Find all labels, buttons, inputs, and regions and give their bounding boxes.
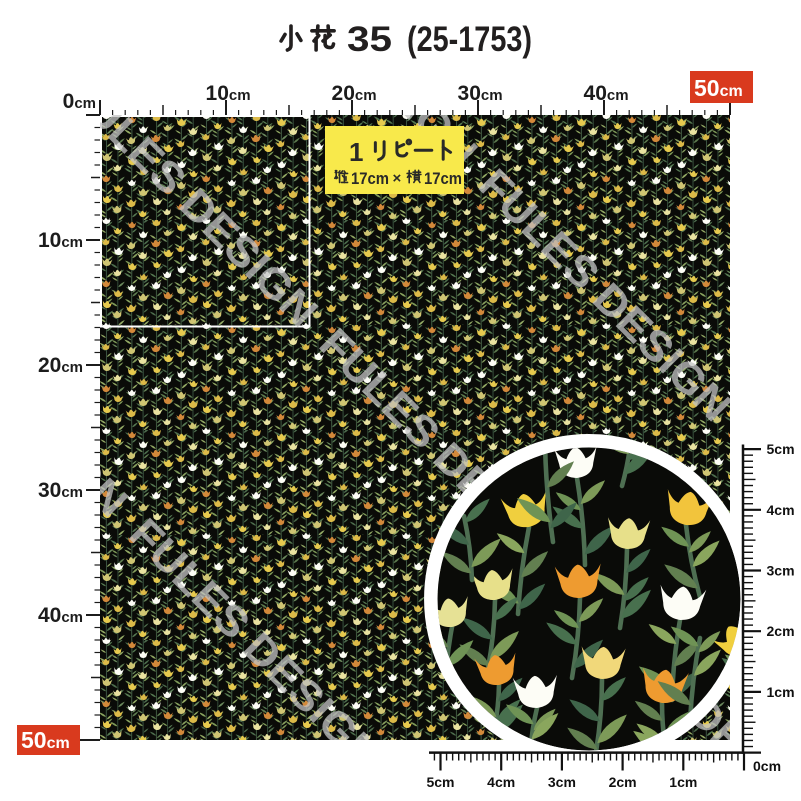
svg-text:1cm: 1cm <box>767 684 795 700</box>
svg-text:4cm: 4cm <box>487 774 515 790</box>
svg-text:2cm: 2cm <box>609 774 637 790</box>
svg-text:3cm: 3cm <box>767 563 795 579</box>
svg-text:35: 35 <box>347 20 392 59</box>
svg-text:4cm: 4cm <box>767 502 795 518</box>
svg-text:5cm: 5cm <box>426 774 454 790</box>
svg-text:3cm: 3cm <box>548 774 576 790</box>
svg-text:17cm: 17cm <box>351 169 389 188</box>
svg-text:17cm: 17cm <box>424 169 462 188</box>
svg-text:5cm: 5cm <box>767 441 795 457</box>
svg-text:0cm: 0cm <box>753 758 781 774</box>
svg-text:1: 1 <box>349 137 363 167</box>
svg-text:×: × <box>393 170 402 187</box>
svg-text:(25-1753): (25-1753) <box>407 20 532 59</box>
svg-text:1cm: 1cm <box>669 774 697 790</box>
svg-text:2cm: 2cm <box>767 623 795 639</box>
